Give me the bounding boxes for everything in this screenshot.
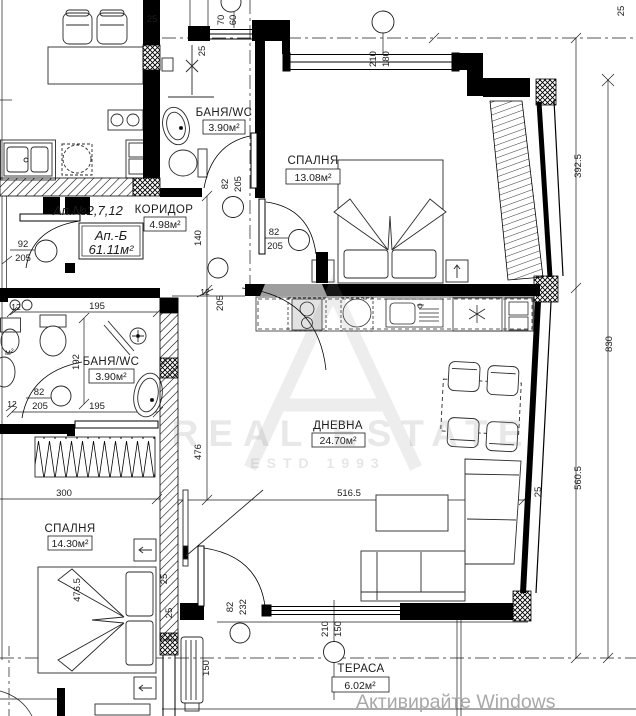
dim-25-d: 25	[159, 574, 170, 585]
bedroom-left-furniture	[38, 539, 156, 699]
dim-192: 192	[71, 354, 82, 370]
dim-25-c: 25	[616, 6, 627, 17]
dim-300: 300	[56, 488, 72, 499]
activate-windows-watermark: Активирайте Windows	[356, 691, 556, 713]
room-area-bath-top: 3.90м²	[208, 122, 240, 134]
room-label-bath-left: БАНЯ/WC	[83, 356, 140, 368]
room-label-bath-top: БАНЯ/WC	[196, 107, 253, 119]
watermark-estd: ESTD 1993	[250, 455, 385, 471]
dim-830: 830	[604, 336, 615, 352]
neighbor-area-partial: м²	[5, 347, 14, 357]
dim-210-top: 210	[368, 51, 379, 67]
door-bedroom-top-width: 82	[269, 227, 280, 238]
apartment-title: Ап.№2,7,12 Ап.-Б 61.11м²	[52, 203, 143, 259]
apartment-numbers: Ап.№2,7,12	[52, 203, 123, 218]
dim-210-bottom: 210	[320, 621, 331, 637]
dim-140: 140	[193, 230, 204, 246]
dim-25-b: 25	[197, 46, 208, 57]
living-room-furniture	[183, 361, 522, 601]
door-bath-left-width: 82	[34, 387, 45, 398]
door-bath-left-height: 205	[32, 401, 48, 412]
dim-180: 180	[381, 51, 392, 67]
floor-plan-canvas: БАНЯ/WC 3.90м² СПАЛНЯ 13.08м² КОРИДОР 4.…	[0, 0, 636, 716]
dim-12-b: 12	[11, 302, 21, 312]
dim-70: 70	[216, 15, 227, 26]
room-label-corridor: КОРИДОР	[135, 204, 194, 216]
terrace-door-arc	[204, 548, 265, 606]
bedroom-top-door-leaf	[259, 199, 265, 254]
room-label-bedroom-left: СПАЛНЯ	[44, 523, 95, 535]
bath-top-door-leaf	[251, 133, 257, 188]
dim-516-5: 516.5	[337, 488, 361, 499]
terrace-door-hinge	[262, 605, 271, 616]
dim-195-a: 195	[89, 301, 105, 312]
bedroom-left-door-leaf	[75, 421, 158, 428]
door-bath-top-width: 82	[220, 179, 231, 190]
room-label-terrace: ТЕРАСА	[337, 663, 384, 675]
dim-150-terrace: 150	[201, 660, 212, 676]
kitchen-counter	[256, 297, 534, 331]
room-label-bedroom-top: СПАЛНЯ	[287, 155, 338, 167]
watermark-brand: REAL ESTATE	[172, 413, 533, 454]
dim-12-a: 12	[7, 399, 17, 409]
apartment-area: 61.11м²	[89, 242, 134, 257]
room-area-bath-left: 3.90м²	[95, 371, 127, 383]
neighbor-kitchen	[1, 10, 149, 180]
door-entry-width: 92	[18, 239, 29, 250]
door-living-height: 205	[215, 295, 226, 311]
terrace-door-leaf	[198, 546, 204, 606]
dim-60: 60	[228, 15, 239, 26]
dim-150-window: 150	[333, 621, 344, 637]
wardrobe	[35, 437, 155, 477]
room-area-bedroom-top: 13.08м²	[295, 172, 332, 184]
dim-25-f: 25	[533, 487, 544, 498]
fridge-snowflake-icon	[469, 305, 485, 323]
dim-195-b: 195	[89, 401, 105, 412]
room-area-corridor: 4.98м²	[149, 219, 181, 231]
dim-476-5: 476.5	[72, 578, 83, 602]
door-bath-top-height: 205	[233, 176, 244, 192]
dim-12-c: 12	[200, 287, 210, 297]
door-bedroom-top-height: 205	[267, 241, 283, 252]
door-terrace-width: 82	[225, 602, 236, 613]
door-terrace-height: 232	[238, 599, 249, 615]
terrace-radiator	[181, 637, 203, 711]
dim-25-e: 25	[164, 608, 175, 619]
apartment-name: Ап.-Б	[94, 228, 128, 243]
dim-25-a: 25	[147, 14, 158, 25]
dim-560-5: 560.5	[573, 466, 584, 490]
door-entry-height: 205	[15, 253, 31, 264]
window-70-60	[210, 30, 252, 40]
room-area-bedroom-left: 14.30м²	[52, 538, 89, 550]
glazed-wall-hatch	[490, 101, 543, 280]
dim-392-5: 392.5	[573, 154, 584, 178]
floor-plan-drawing: БАНЯ/WC 3.90м² СПАЛНЯ 13.08м² КОРИДОР 4.…	[0, 0, 636, 716]
